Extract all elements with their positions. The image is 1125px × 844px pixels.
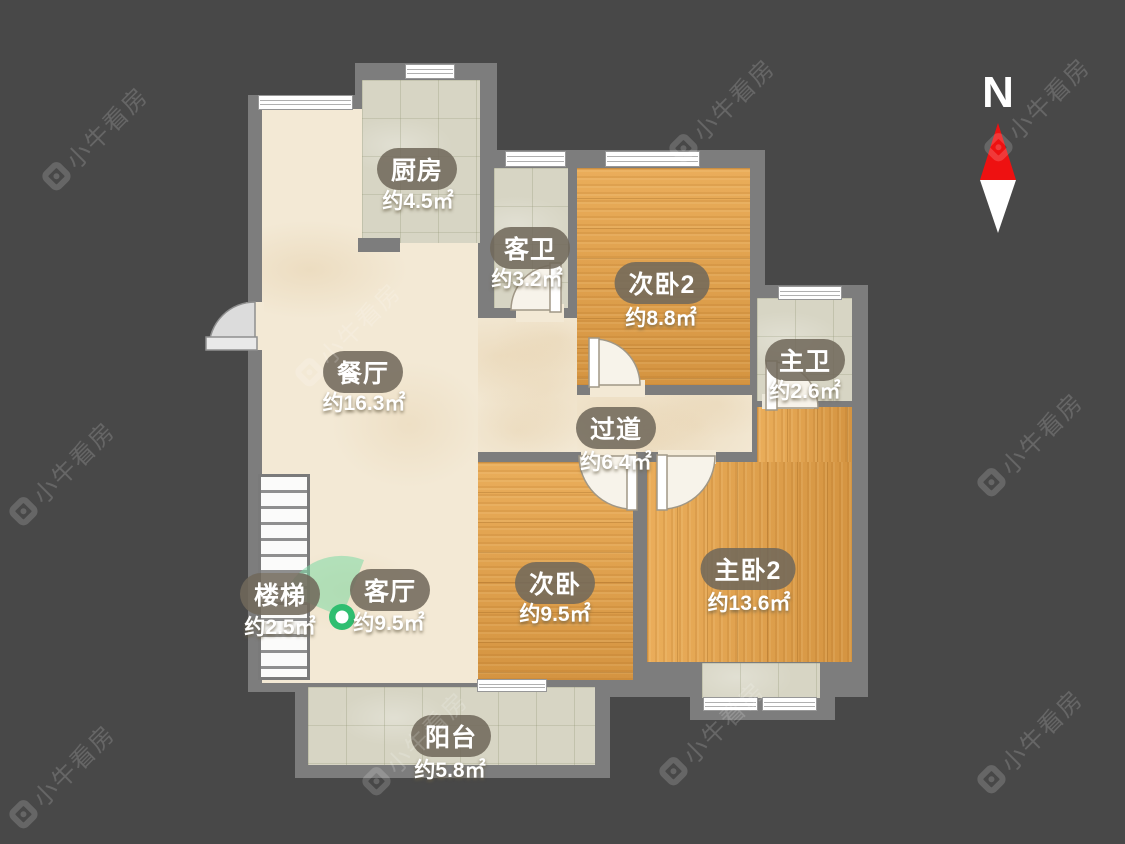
room-area-bedroom2: 约8.8㎡ <box>625 302 696 332</box>
viewpoint-dot[interactable] <box>329 604 355 630</box>
room-label-bedroom2: 次卧2 <box>615 262 710 304</box>
room-label-stairs: 楼梯 <box>240 573 320 615</box>
window <box>762 697 817 711</box>
watermark-logo-icon <box>39 159 73 193</box>
hallway-floor <box>478 318 577 452</box>
floor-plan: N 厨房 约4.5㎡ 客卫 约3.2㎡ 次卧2 约8.8㎡ 主卫 约2.6㎡ 餐… <box>0 0 1125 844</box>
watermark-logo-icon <box>6 797 40 831</box>
watermark: 小牛看房 <box>35 77 155 197</box>
watermark-logo-icon <box>981 130 1015 164</box>
watermark: 小牛看房 <box>970 680 1090 800</box>
watermark-logo-icon <box>974 762 1008 796</box>
master-bedroom2-opening <box>658 450 716 464</box>
room-area-guest-bath: 约3.2㎡ <box>491 263 562 293</box>
room-label-master-bedroom2: 主卧2 <box>701 548 796 590</box>
room-label-kitchen: 厨房 <box>377 148 457 190</box>
room-area-hallway: 约6.4㎡ <box>580 446 651 476</box>
entrance-opening <box>246 302 264 350</box>
window <box>778 286 842 300</box>
window <box>477 679 547 692</box>
bay-window-floor <box>702 663 820 698</box>
bedroom2-opening <box>590 380 645 397</box>
compass-north-icon <box>980 123 1016 233</box>
watermark-logo-icon <box>6 494 40 528</box>
room-label-balcony: 阳台 <box>411 715 491 757</box>
compass-north-label: N <box>976 68 1020 118</box>
master-bedroom2-floor <box>757 407 852 462</box>
room-area-bedroom: 约9.5㎡ <box>519 598 590 628</box>
wall <box>358 238 400 252</box>
guest-bath-opening <box>516 304 564 322</box>
window <box>505 151 566 167</box>
window <box>405 64 455 79</box>
room-label-living: 客厅 <box>350 569 430 611</box>
window <box>703 697 758 711</box>
watermark: 小牛看房 <box>2 412 122 532</box>
watermark-logo-icon <box>974 465 1008 499</box>
room-label-hallway: 过道 <box>576 407 656 449</box>
window <box>605 151 700 167</box>
room-area-stairs: 约2.5㎡ <box>244 611 315 641</box>
watermark: 小牛看房 <box>2 715 122 835</box>
room-area-kitchen: 约4.5㎡ <box>382 185 453 215</box>
room-area-master-bedroom2: 约13.6㎡ <box>708 587 791 617</box>
room-area-balcony: 约5.8㎡ <box>414 754 485 784</box>
room-area-dining: 约16.3㎡ <box>323 387 406 417</box>
room-area-living: 约9.5㎡ <box>353 607 424 637</box>
watermark-logo-icon <box>656 754 690 788</box>
window <box>258 95 353 110</box>
room-area-master-bath: 约2.6㎡ <box>769 375 840 405</box>
watermark: 小牛看房 <box>970 383 1090 503</box>
